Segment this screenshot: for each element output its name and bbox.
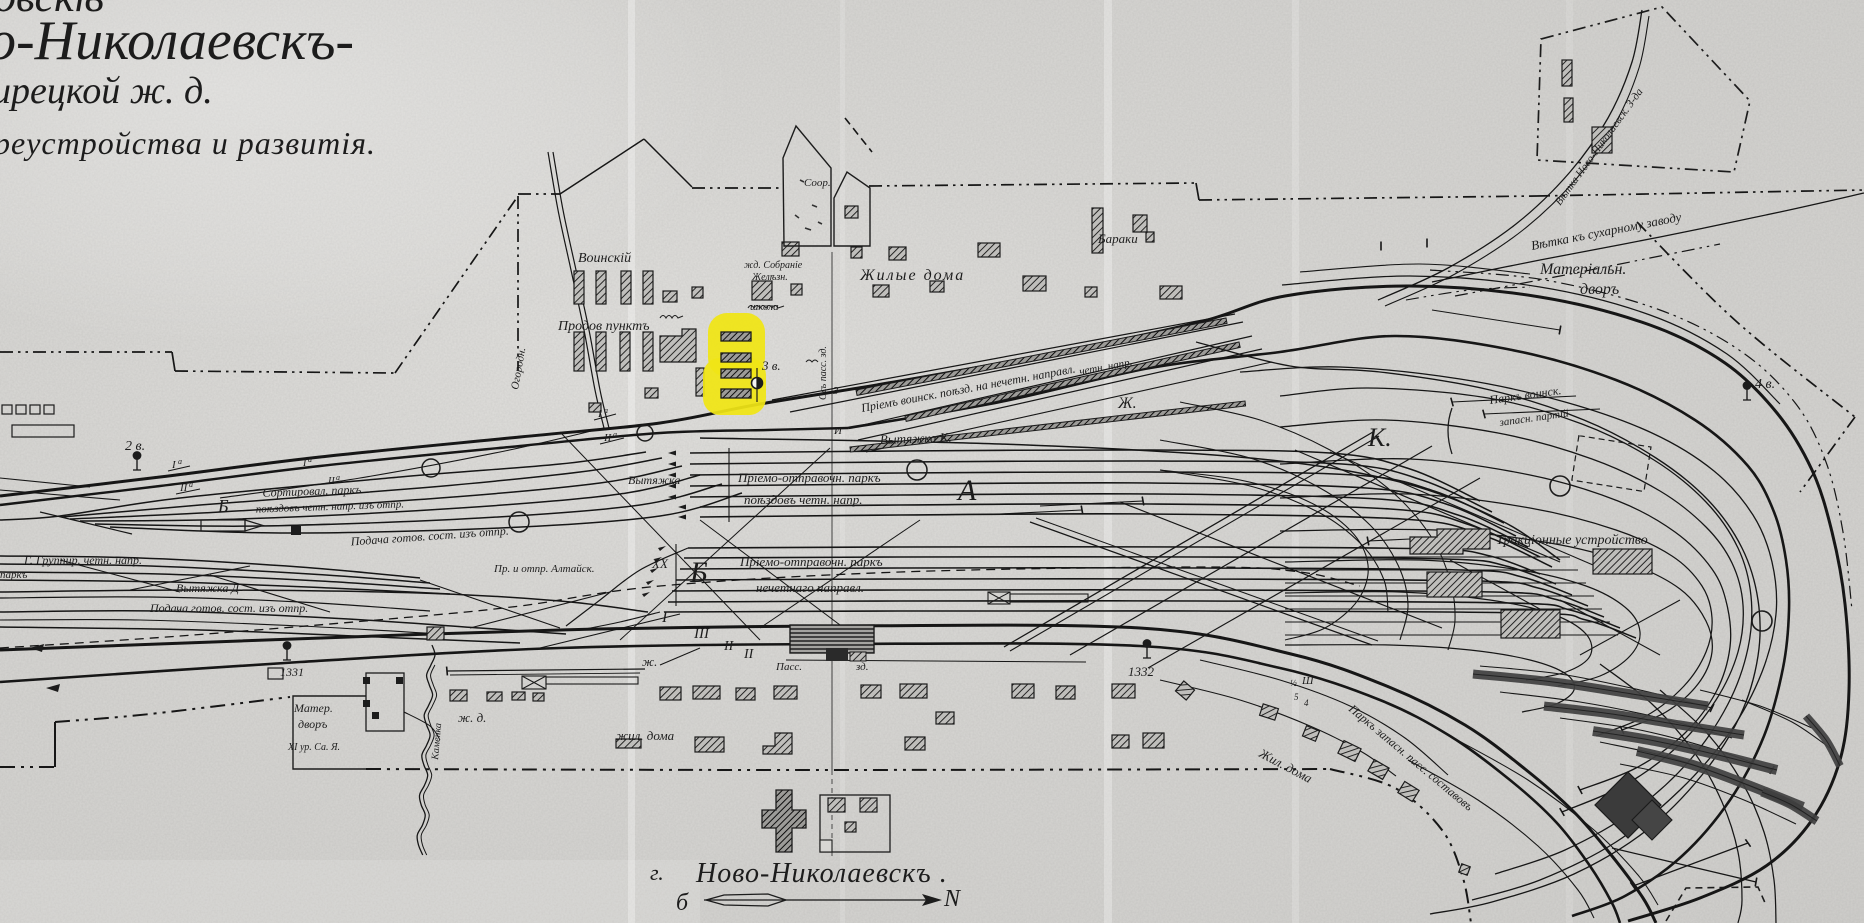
- svg-text:½: ½: [1290, 678, 1297, 688]
- svg-text:XX: XX: [651, 556, 669, 571]
- svg-text:а: а: [604, 406, 608, 415]
- svg-text:4 в.: 4 в.: [1755, 377, 1775, 392]
- svg-text:Воинскій: Воинскій: [578, 251, 631, 266]
- svg-text:3 в.: 3 в.: [761, 358, 781, 373]
- svg-text:паркъ: паркъ: [0, 569, 28, 581]
- svg-text:ж.: ж.: [642, 654, 657, 669]
- svg-text:I: I: [302, 458, 307, 469]
- svg-text:II: II: [723, 639, 735, 654]
- svg-text:жил. дома: жил. дома: [616, 728, 675, 743]
- svg-text:а: а: [613, 430, 617, 439]
- svg-text:жд. Собраніе: жд. Собраніе: [744, 260, 803, 271]
- svg-text:Тракціонные устройство: Тракціонные устройство: [1496, 533, 1648, 548]
- svg-text:2 в.: 2 в.: [125, 439, 145, 454]
- svg-text:зд.: зд.: [855, 661, 868, 673]
- svg-text:дворъ: дворъ: [298, 717, 327, 731]
- svg-text:Пасс.: Пасс.: [775, 661, 802, 673]
- svg-text:Желѣзн.: Желѣзн.: [751, 272, 788, 283]
- svg-text:Б: Б: [689, 556, 708, 589]
- svg-text:реустройства и развитія.: реустройства и развитія.: [0, 125, 376, 161]
- svg-text:нечетнаго направл.: нечетнаго направл.: [756, 580, 864, 595]
- svg-text:Ш: Ш: [1301, 675, 1314, 687]
- svg-text:Вытяжка Д: Вытяжка Д: [176, 581, 240, 595]
- svg-text:II: II: [743, 647, 755, 662]
- svg-text:N: N: [943, 886, 962, 912]
- svg-text:б: б: [676, 890, 689, 916]
- svg-text:Б: Б: [217, 496, 229, 516]
- svg-text:Продов пунктъ: Продов пунктъ: [557, 319, 650, 334]
- svg-text:Г. Группир. четн. напр.: Г. Группир. четн. напр.: [23, 553, 142, 567]
- svg-text:III: III: [693, 626, 710, 642]
- svg-text:1332: 1332: [1128, 664, 1155, 679]
- svg-text:ж. д.: ж. д.: [458, 710, 486, 725]
- svg-text:Матер.: Матер.: [293, 701, 333, 715]
- svg-text:Бараки: Бараки: [1097, 231, 1138, 246]
- svg-text:о-Николаевскъ-: о-Николаевскъ-: [0, 10, 354, 72]
- svg-text:И: И: [833, 425, 843, 437]
- svg-text:5: 5: [1294, 692, 1299, 702]
- svg-text:ирецкой ж. д.: ирецкой ж. д.: [0, 70, 213, 112]
- svg-text:I: I: [661, 609, 668, 626]
- svg-text:школа: школа: [750, 301, 779, 313]
- svg-text:Пр. и отпр. Алтайск.: Пр. и отпр. Алтайск.: [493, 563, 595, 575]
- svg-text:а: а: [336, 473, 340, 482]
- svg-text:3: 3: [832, 385, 839, 397]
- svg-text:К.: К.: [1367, 423, 1392, 452]
- svg-text:Пріемо-отправочн. паркъ: Пріемо-отправочн. паркъ: [737, 470, 881, 485]
- svg-text:а: а: [178, 457, 182, 466]
- svg-text:А: А: [956, 474, 977, 507]
- svg-text:Соор.: Соор.: [804, 177, 831, 189]
- svg-text:4: 4: [1304, 698, 1309, 708]
- svg-text:Ось пасс. зд.: Ось пасс. зд.: [818, 346, 829, 400]
- svg-text:а: а: [189, 480, 193, 489]
- svg-text:1331: 1331: [280, 665, 304, 679]
- svg-text:XI ур. Са. Я.: XI ур. Са. Я.: [287, 742, 340, 753]
- svg-text:Вытяжка К.: Вытяжка К.: [880, 430, 952, 447]
- svg-text:г.: г.: [650, 860, 664, 885]
- svg-text:Вытяжка: Вытяжка: [628, 473, 680, 487]
- svg-text:поѣздовъ четн. напр.: поѣздовъ четн. напр.: [744, 492, 862, 507]
- svg-text:а: а: [308, 455, 312, 464]
- svg-text:Ново-Николаевскъ .: Ново-Николаевскъ .: [695, 858, 948, 889]
- svg-text:Пріемо-отправочн. паркъ: Пріемо-отправочн. паркъ: [739, 554, 883, 569]
- svg-text:дворъ: дворъ: [1580, 281, 1619, 298]
- svg-text:Жилые дома: Жилые дома: [859, 267, 965, 284]
- svg-text:Подача готов. сост. изъ отпр.: Подача готов. сост. изъ отпр.: [149, 601, 308, 615]
- svg-text:Ж.: Ж.: [1117, 395, 1137, 412]
- svg-text:Матеріальн.: Матеріальн.: [1539, 261, 1626, 278]
